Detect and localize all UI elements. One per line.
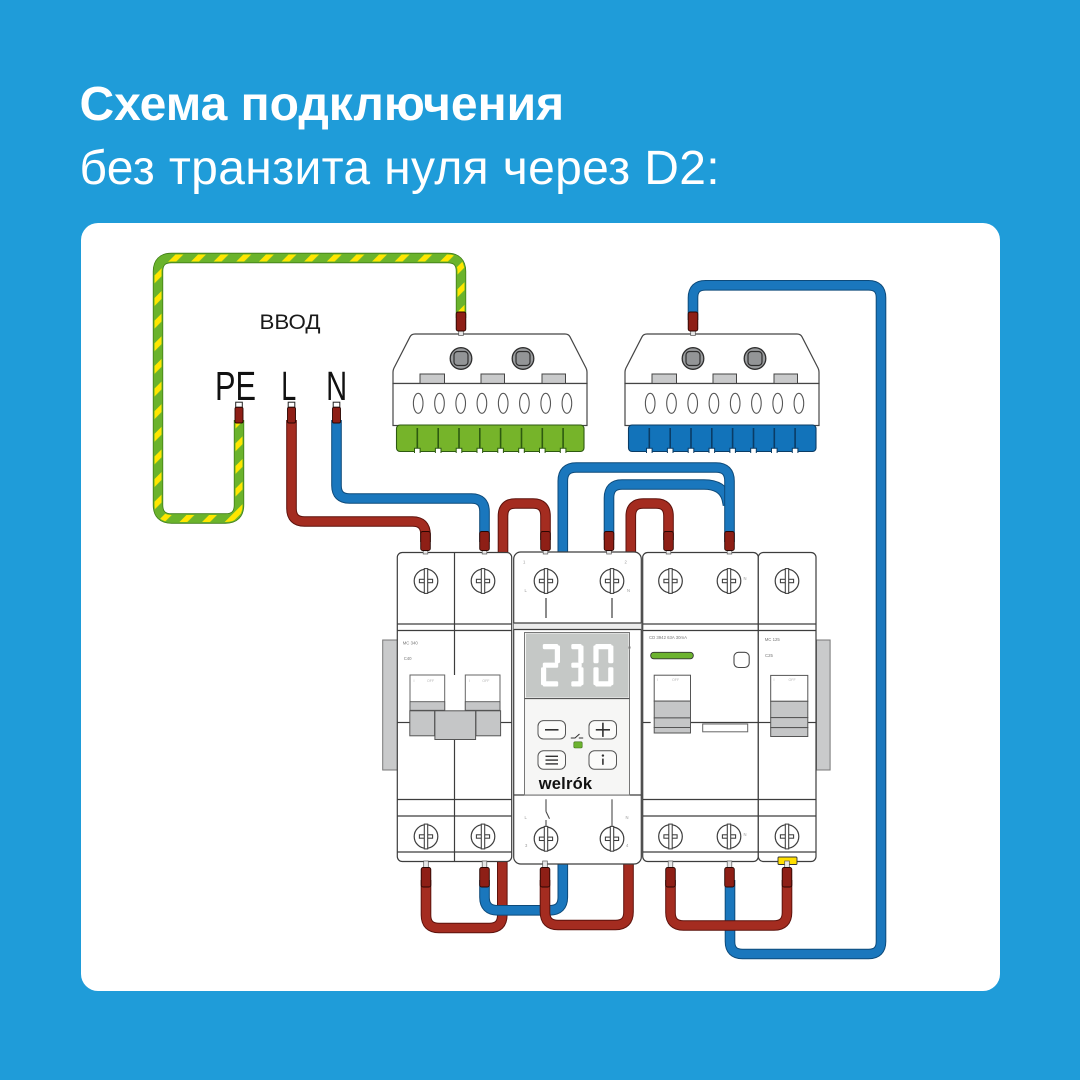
svg-text:MC 125: MC 125: [765, 637, 781, 642]
svg-text:C40: C40: [404, 656, 412, 661]
svg-text:v: v: [628, 646, 631, 652]
svg-text:OFF: OFF: [427, 679, 435, 683]
svg-text:I: I: [469, 679, 470, 683]
svg-text:CD 3942 63A 30mA: CD 3942 63A 30mA: [649, 635, 687, 640]
svg-text:I: I: [774, 678, 775, 682]
svg-text:I: I: [657, 678, 658, 682]
svg-text:OFF: OFF: [789, 678, 797, 682]
svg-text:welrók: welrók: [538, 775, 593, 793]
svg-text:N: N: [744, 832, 747, 837]
svg-text:ВВОД: ВВОД: [260, 310, 321, 334]
svg-text:N: N: [627, 588, 630, 593]
svg-text:OFF: OFF: [482, 679, 490, 683]
svg-text:MC 340: MC 340: [403, 641, 419, 646]
svg-text:N: N: [626, 815, 629, 820]
svg-text:OFF: OFF: [672, 678, 680, 682]
svg-text:C25: C25: [765, 653, 773, 658]
svg-text:I: I: [414, 679, 415, 683]
svg-text:без транзита нуля через D2:: без транзита нуля через D2:: [80, 142, 720, 195]
svg-text:N: N: [744, 576, 747, 581]
svg-text:Схема подключения: Схема подключения: [80, 78, 565, 131]
